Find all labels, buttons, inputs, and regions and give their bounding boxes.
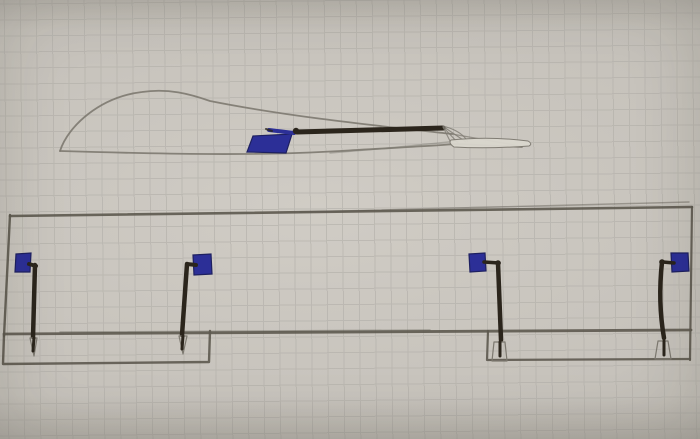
actuator-2-post	[182, 264, 187, 335]
planform-figure	[3, 202, 692, 364]
actuator-2	[179, 254, 212, 354]
planform-right-edge	[690, 207, 692, 360]
actuator-1-foot-pin	[33, 338, 34, 351]
airfoil-lower-shadow-line	[330, 141, 458, 153]
planform-left-edge	[4, 215, 10, 336]
actuator-1-post	[33, 265, 35, 337]
actuator-4-post	[660, 262, 664, 338]
trailing-edge-slab	[450, 138, 531, 148]
airfoil-figure	[60, 91, 531, 154]
servo-body	[247, 134, 292, 153]
actuator-3-post	[498, 263, 501, 340]
actuator-4	[655, 253, 689, 359]
sketch-drawing	[0, 0, 700, 439]
actuator-2-foot-pin	[182, 336, 183, 349]
actuator-1	[15, 253, 37, 356]
sketch-photo	[0, 0, 700, 439]
planform-top-edge	[10, 207, 692, 216]
right-flap-cutout	[487, 331, 690, 360]
